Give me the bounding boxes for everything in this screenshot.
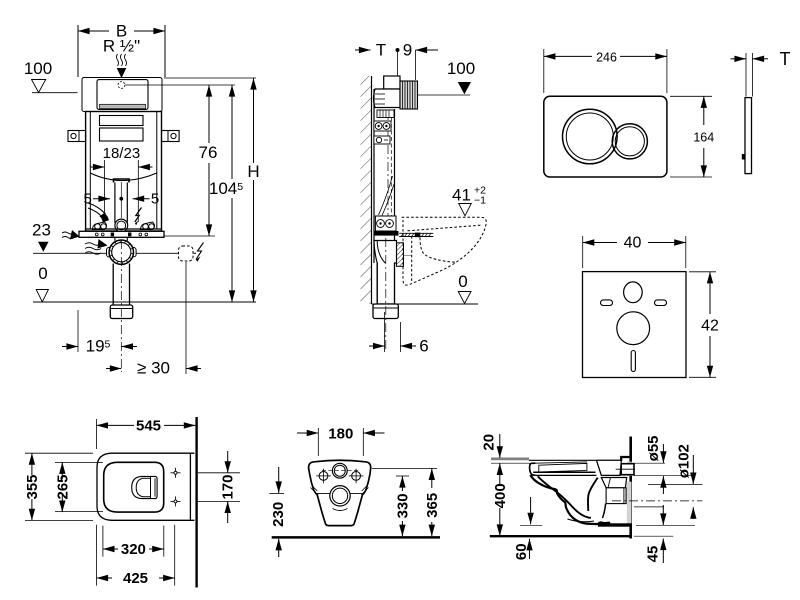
svg-text:41: 41 <box>452 186 471 205</box>
svg-text:18/23: 18/23 <box>103 145 141 162</box>
svg-text:76: 76 <box>199 143 218 162</box>
svg-text:≥ 30: ≥ 30 <box>137 359 170 378</box>
svg-text:246: 246 <box>596 51 617 65</box>
svg-text:45: 45 <box>644 546 661 563</box>
svg-text:R ½": R ½" <box>103 37 140 56</box>
svg-text:5: 5 <box>84 191 92 208</box>
svg-text:9: 9 <box>403 41 412 60</box>
svg-text:H: H <box>247 162 259 181</box>
svg-text:ø102: ø102 <box>676 444 693 478</box>
svg-text:355: 355 <box>24 474 41 499</box>
svg-text:42: 42 <box>701 317 719 334</box>
svg-text:40: 40 <box>624 235 642 252</box>
svg-text:20: 20 <box>481 434 498 451</box>
svg-text:−1: −1 <box>474 195 486 207</box>
svg-text:100: 100 <box>24 59 52 78</box>
svg-text:180: 180 <box>328 425 353 442</box>
svg-text:5: 5 <box>151 191 159 208</box>
svg-text:365: 365 <box>424 493 441 518</box>
svg-text:164: 164 <box>693 131 714 145</box>
svg-text:400: 400 <box>492 483 509 508</box>
svg-text:425: 425 <box>123 570 148 587</box>
svg-text:T: T <box>780 49 791 69</box>
svg-text:545: 545 <box>136 418 161 435</box>
svg-text:265: 265 <box>54 474 71 499</box>
svg-text:230: 230 <box>270 502 287 527</box>
svg-text:6: 6 <box>419 337 428 356</box>
svg-text:0: 0 <box>38 264 47 283</box>
svg-text:0: 0 <box>458 272 467 291</box>
svg-text:320: 320 <box>121 541 146 558</box>
svg-text:23: 23 <box>32 221 51 240</box>
svg-text:T: T <box>376 41 386 60</box>
svg-text:60: 60 <box>513 543 530 560</box>
svg-text:170: 170 <box>220 474 237 499</box>
svg-text:100: 100 <box>447 59 475 78</box>
svg-text:330: 330 <box>394 493 411 518</box>
svg-text:ø55: ø55 <box>645 435 662 461</box>
